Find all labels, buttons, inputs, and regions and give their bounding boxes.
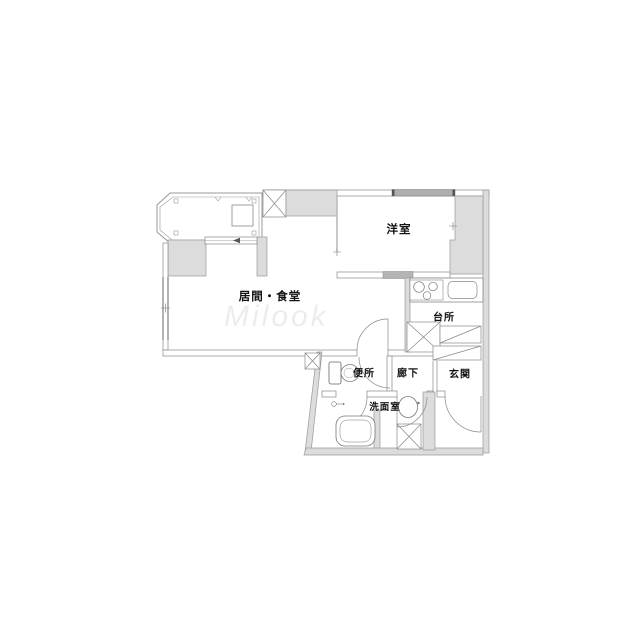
- room-label-toilet: 便所: [353, 365, 375, 380]
- balcony-corner-mark: [252, 231, 256, 235]
- living-bottom-wall-left: [163, 350, 357, 356]
- structural-column-right: [450, 196, 483, 274]
- bottom-wall: [304, 448, 483, 455]
- dimension-cross: [161, 304, 170, 313]
- bath-faucet-icon: [332, 402, 345, 407]
- railing-post-mark: [215, 197, 221, 201]
- top-wall-window-cap: [453, 190, 456, 197]
- balcony-corner-mark: [174, 199, 178, 203]
- entrance-alcove-wall: [423, 392, 435, 450]
- balcony-corner-mark: [252, 199, 256, 203]
- washroom-top-wall-a: [322, 391, 336, 397]
- shoe-cabinet-hatched: [433, 326, 481, 392]
- dimension-cross: [333, 248, 341, 256]
- entrance-door-wall-stub: [437, 391, 445, 397]
- top-wall-window: [392, 190, 455, 197]
- toilet-right-wall: [387, 356, 392, 392]
- floor-plan-canvas: 居間・食堂 洋室 台所 廊下 玄関 便所 洗面室 Milook: [0, 0, 640, 640]
- pipe-shaft-x-box-lower: [305, 353, 320, 369]
- balcony: [157, 193, 262, 243]
- room-label-washroom: 洗面室: [369, 399, 401, 413]
- balcony-sliding-door: [205, 237, 257, 244]
- right-wall: [483, 190, 489, 453]
- western-room-sliding-panel: [383, 272, 413, 279]
- washroom-top-wall-b: [367, 391, 397, 397]
- balcony-railing-inner: [160, 197, 259, 240]
- left-wall: [163, 243, 168, 350]
- balcony-equipment-box: [232, 205, 253, 226]
- room-label-hallway: 廊下: [397, 365, 419, 380]
- balcony-railing-outer: [157, 193, 262, 243]
- living-hall-door: [357, 319, 388, 350]
- bathtub-icon: [336, 416, 375, 446]
- room-label-kitchen: 台所: [433, 309, 455, 324]
- wall-block-left: [168, 240, 206, 276]
- kitchen-sink-icon: [448, 282, 477, 299]
- top-wall-window-cap: [392, 190, 395, 197]
- balcony-corner-mark: [174, 231, 178, 235]
- room-label-western-room: 洋室: [387, 221, 412, 237]
- floor-plan-drawing: [0, 0, 640, 640]
- pipe-shaft-x-box-top: [263, 190, 286, 217]
- washing-machine-pan-x-box: [397, 424, 421, 449]
- room-label-living-dining: 居間・食堂: [239, 288, 302, 304]
- kitchen-counter: [410, 278, 483, 302]
- room-label-entrance: 玄関: [449, 366, 471, 381]
- wall-stub-center: [257, 237, 267, 276]
- entrance-door: [445, 396, 481, 432]
- closet-top: [286, 190, 337, 216]
- railing-post-mark: [246, 197, 252, 201]
